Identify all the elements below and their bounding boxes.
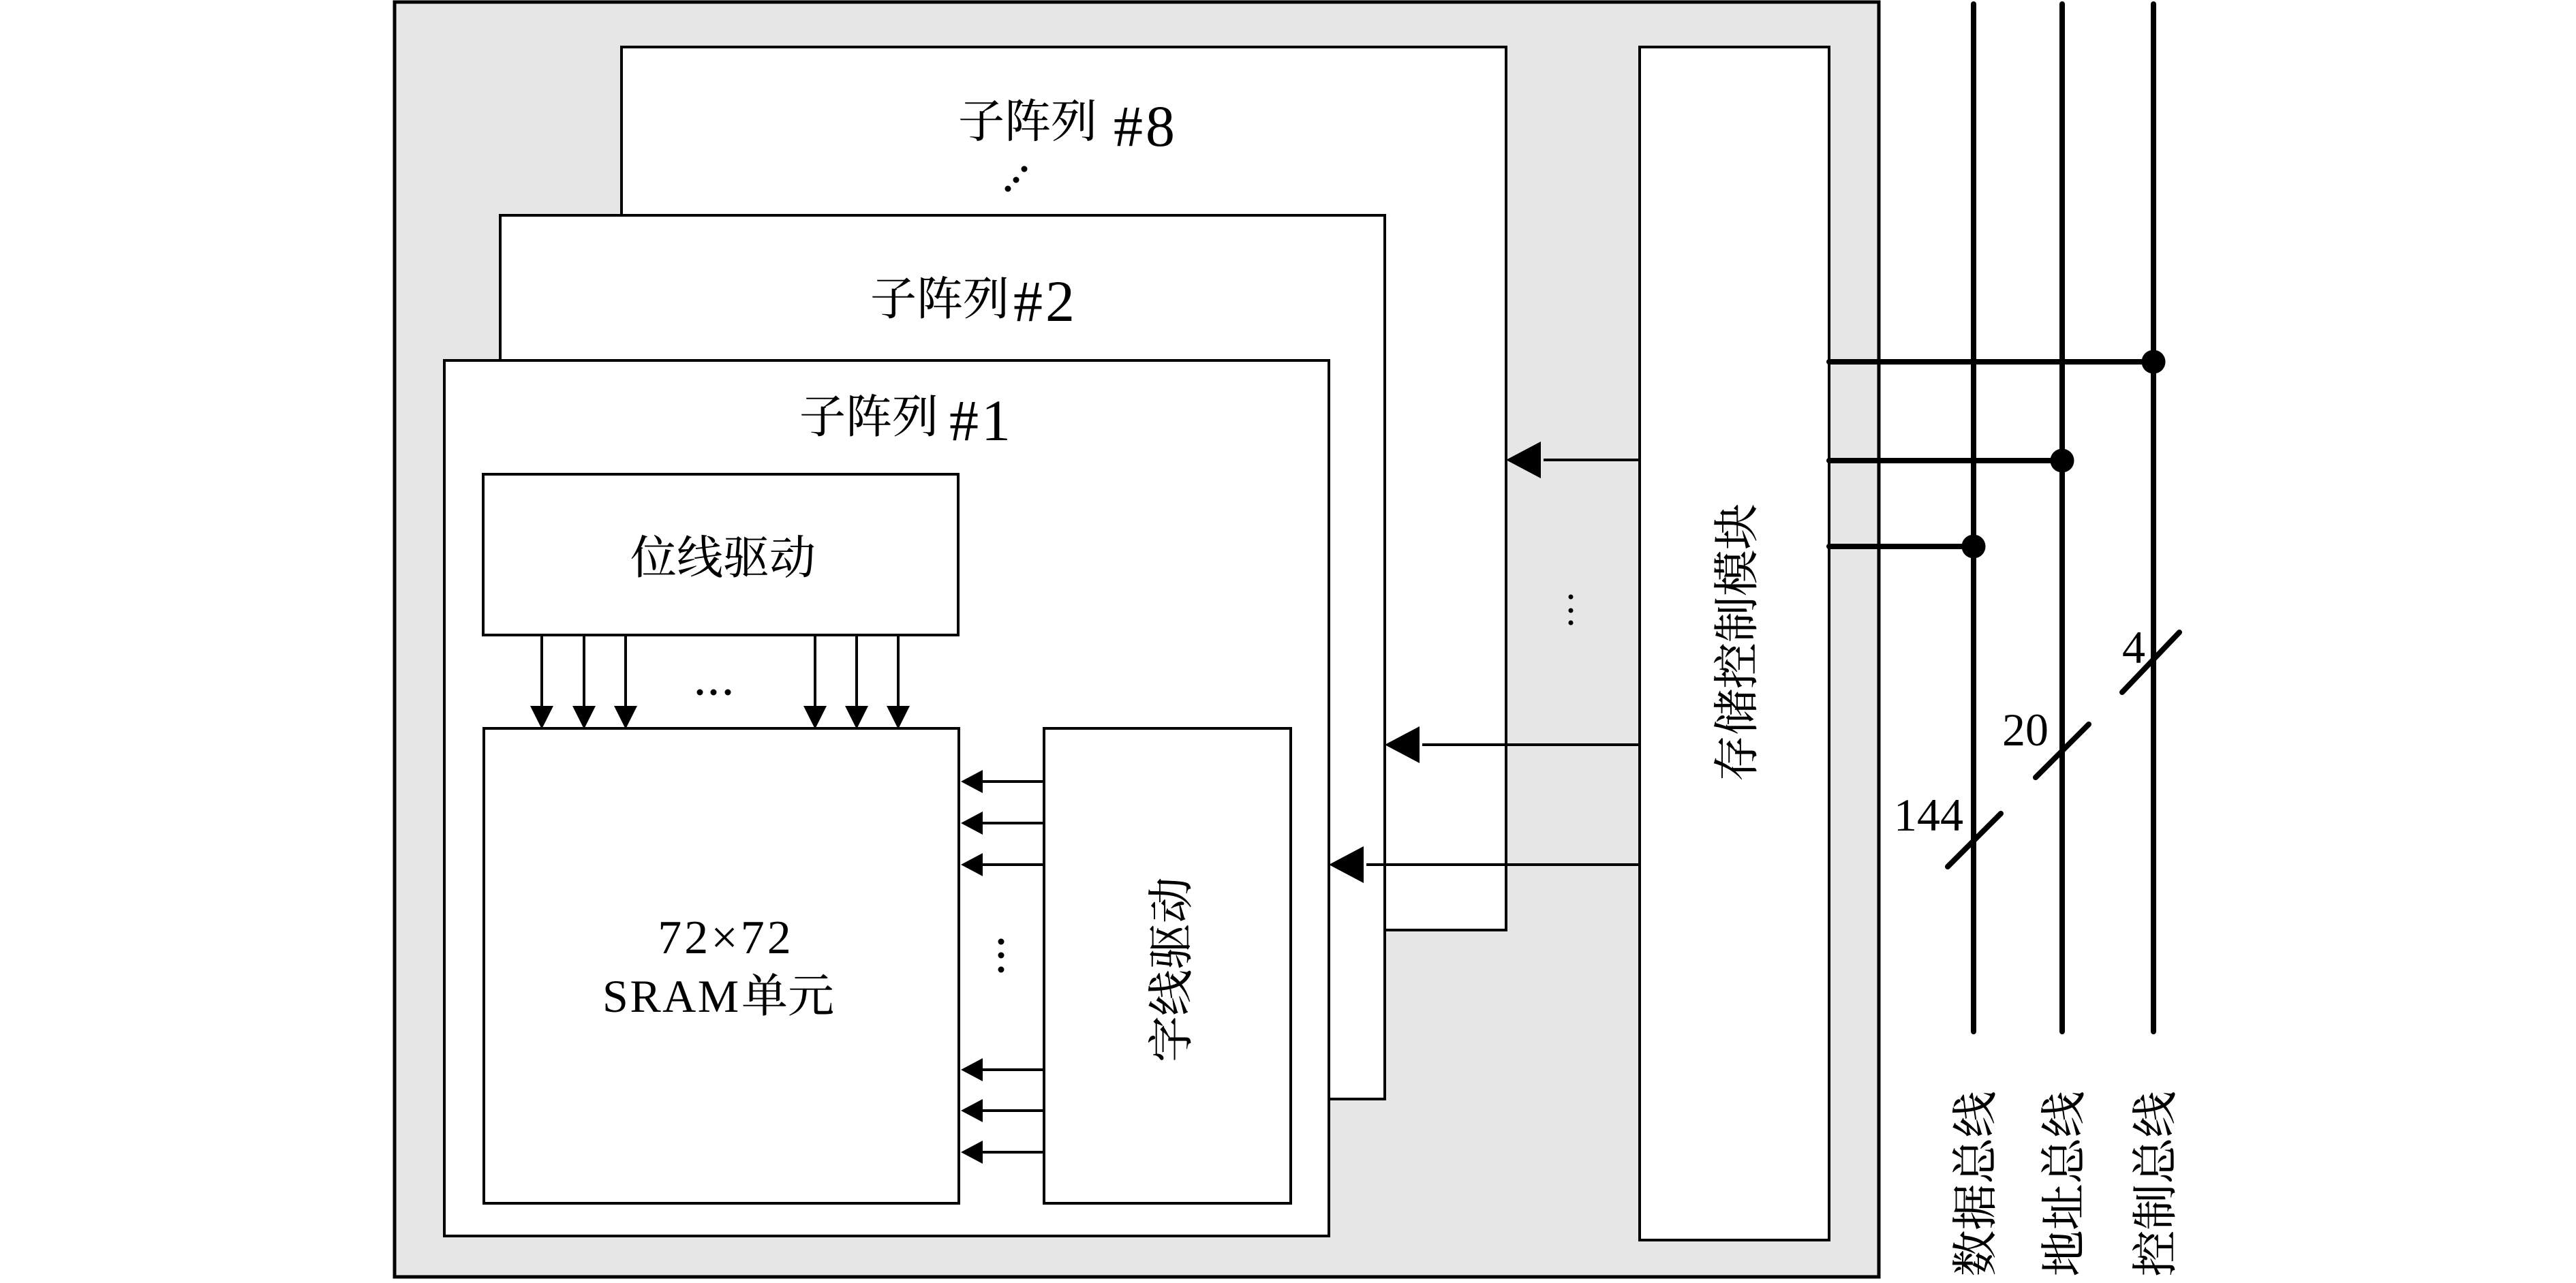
svg-text:144: 144 bbox=[1894, 789, 1963, 841]
svg-text:20: 20 bbox=[2002, 704, 2049, 756]
svg-text:72×72: 72×72 bbox=[658, 912, 793, 964]
svg-text:SRAM: SRAM bbox=[602, 970, 741, 1022]
svg-text:#1: #1 bbox=[949, 388, 1013, 453]
svg-text:4: 4 bbox=[2122, 621, 2145, 673]
svg-text:#2: #2 bbox=[1013, 268, 1077, 334]
svg-text:#8: #8 bbox=[1114, 93, 1178, 159]
